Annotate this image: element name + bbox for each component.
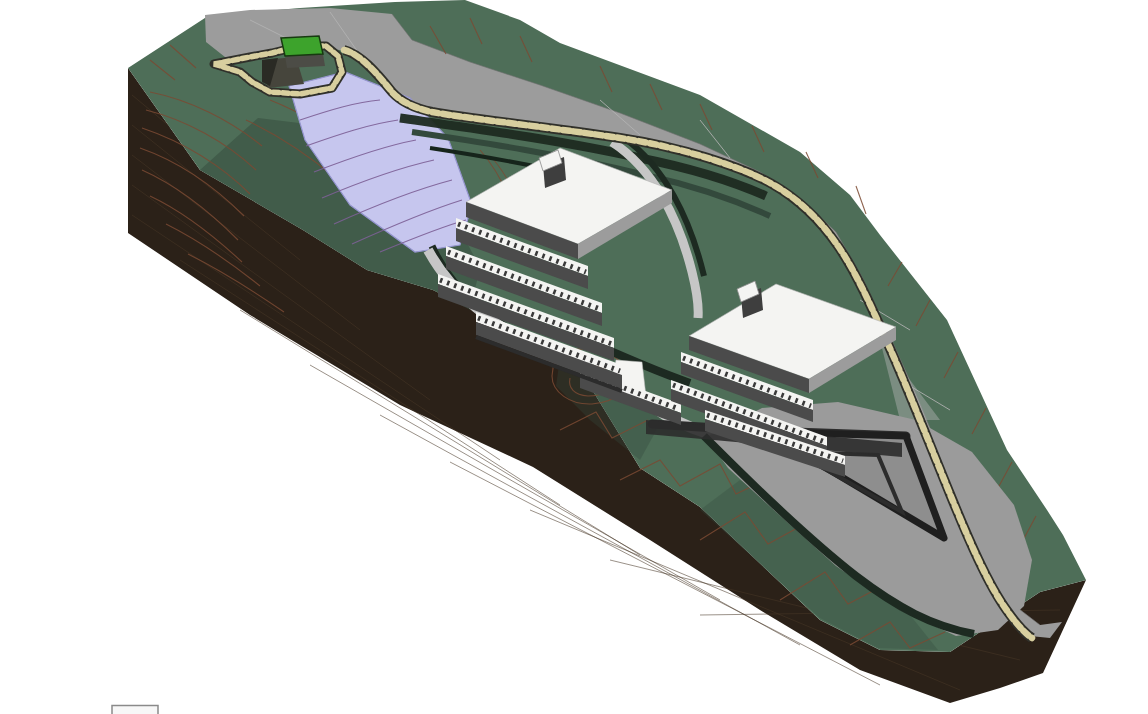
site-model-view bbox=[0, 0, 1148, 714]
green-utility-box bbox=[281, 36, 323, 56]
legend-box-partial bbox=[112, 706, 158, 714]
